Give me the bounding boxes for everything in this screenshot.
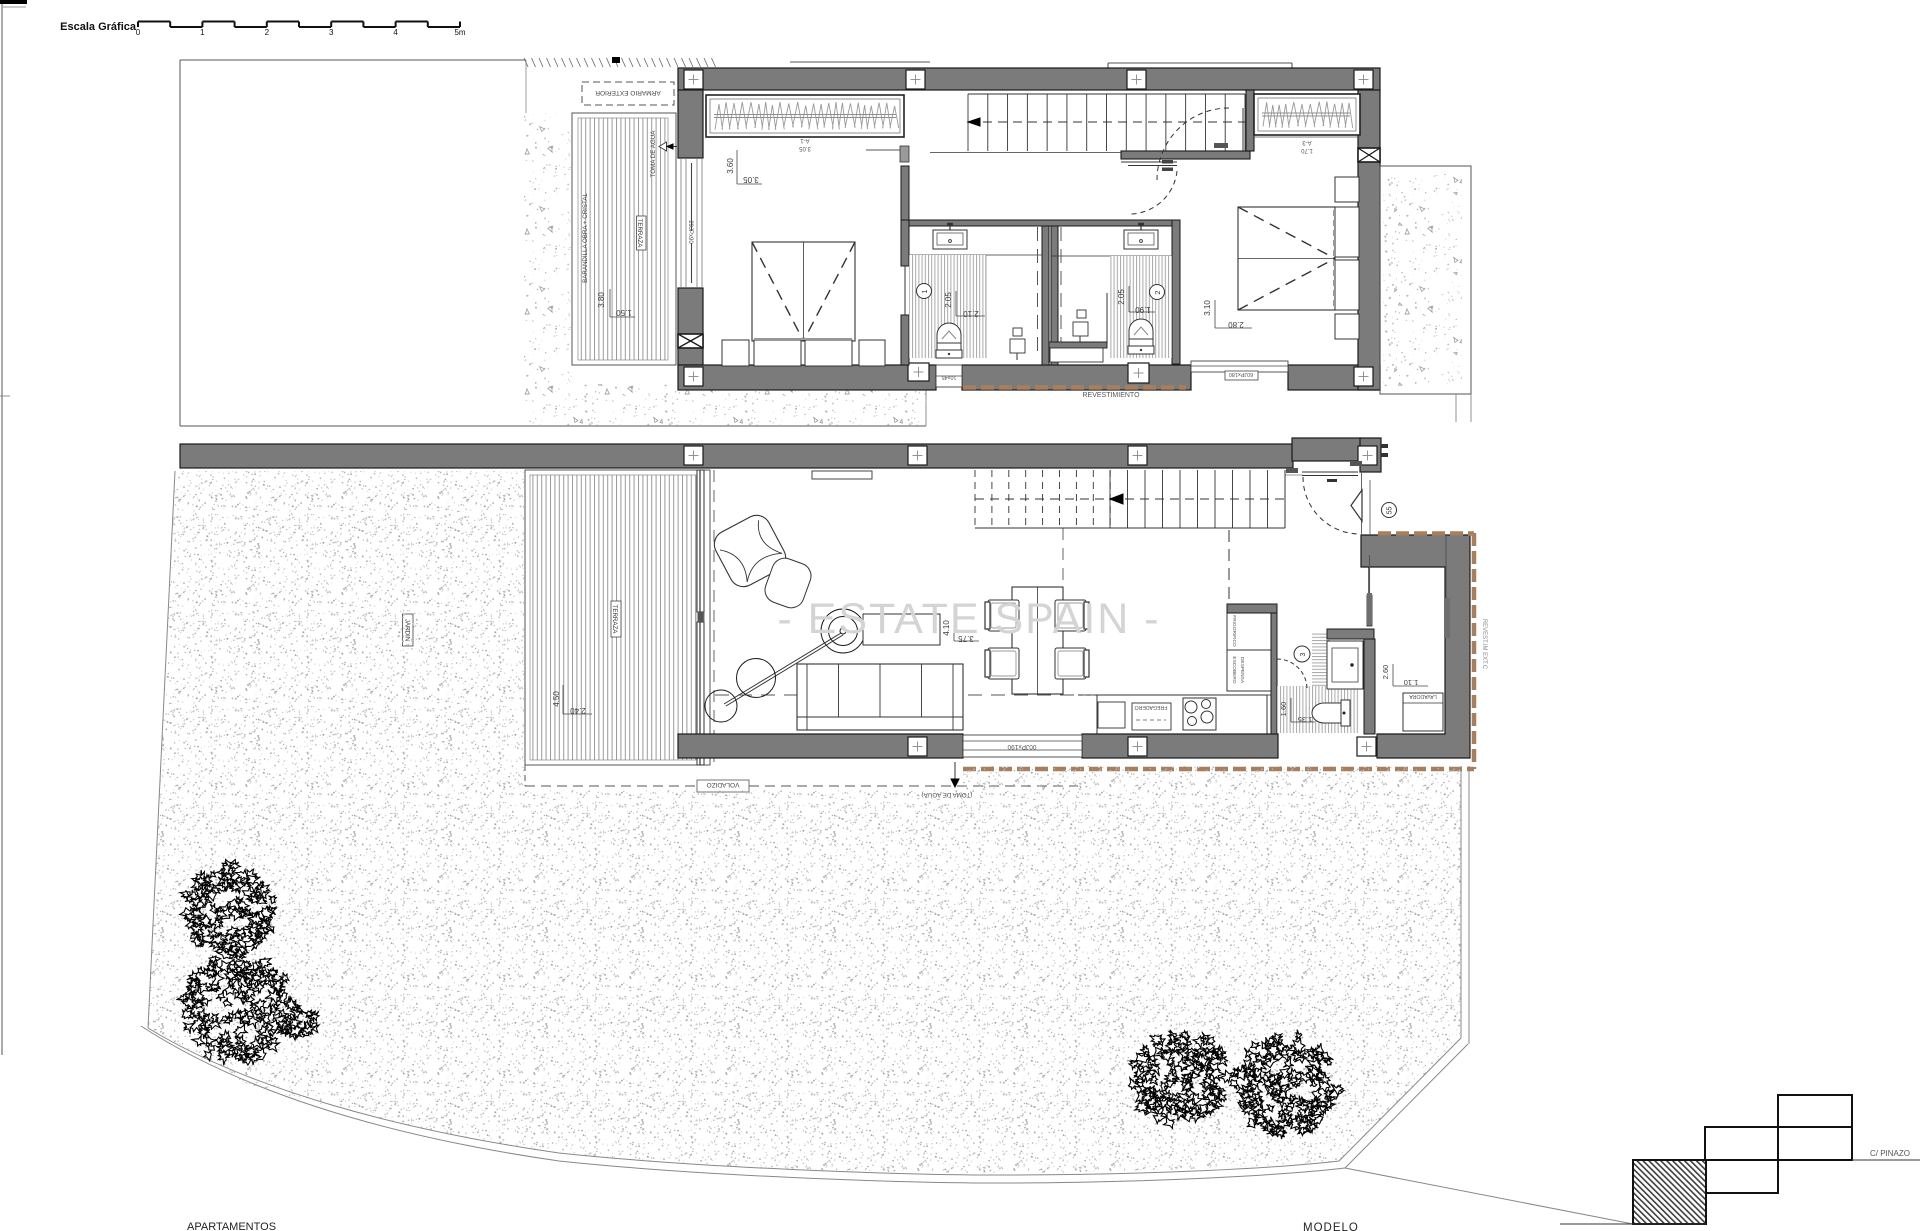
svg-text:A-1: A-1 — [800, 137, 810, 143]
svg-text:60JPx180: 60JPx180 — [1229, 371, 1253, 377]
svg-text:1.50: 1.50 — [616, 308, 632, 317]
svg-text:FRIGORIFICO: FRIGORIFICO — [1231, 615, 1237, 647]
svg-text:5m: 5m — [454, 28, 465, 37]
svg-text:2.10: 2.10 — [963, 309, 979, 318]
svg-text:1: 1 — [920, 289, 929, 293]
svg-text:1.60: 1.60 — [1279, 702, 1288, 717]
svg-text:3: 3 — [329, 28, 334, 37]
svg-text:REVESTIMIENTO: REVESTIMIENTO — [1082, 392, 1140, 399]
svg-text:1.70: 1.70 — [1301, 147, 1313, 153]
svg-text:55: 55 — [1387, 507, 1394, 515]
svg-text:LAVADORA: LAVADORA — [1409, 693, 1437, 699]
svg-text:2.05: 2.05 — [944, 292, 953, 308]
svg-text:3.05: 3.05 — [799, 145, 811, 151]
svg-text:1.90: 1.90 — [1135, 305, 1151, 314]
svg-text:1.10: 1.10 — [1404, 678, 1419, 687]
svg-text:- ESTATE SPAIN -: - ESTATE SPAIN - — [777, 595, 1160, 643]
svg-text:TOMA DE AGUA: TOMA DE AGUA — [650, 130, 657, 178]
svg-text:3.10: 3.10 — [1203, 300, 1212, 316]
svg-text:A-3: A-3 — [1302, 139, 1312, 145]
svg-text:2: 2 — [265, 28, 270, 37]
svg-text:1.35: 1.35 — [1298, 715, 1313, 724]
svg-text:0: 0 — [136, 28, 141, 37]
svg-text:TERRAZA: TERRAZA — [636, 219, 643, 249]
svg-text:Escala Gráfica: Escala Gráfica — [60, 21, 137, 33]
svg-text:C/ PINAZO: C/ PINAZO — [1870, 1149, 1910, 1158]
svg-text:BARANDILLA OBRA + CRISTAL: BARANDILLA OBRA + CRISTAL — [582, 193, 589, 283]
svg-text:00JPx190: 00JPx190 — [1007, 743, 1036, 750]
svg-text:2.40: 2.40 — [570, 706, 586, 715]
svg-text:MODELO: MODELO — [1303, 1222, 1359, 1231]
svg-text:2.05: 2.05 — [1117, 289, 1126, 305]
svg-text:2.80: 2.80 — [1228, 320, 1244, 329]
svg-text:ESCOBERO: ESCOBERO — [1231, 656, 1237, 683]
svg-text:29JPx90: 29JPx90 — [687, 220, 693, 244]
svg-text:10x45: 10x45 — [942, 374, 957, 380]
svg-text:APARTAMENTOS: APARTAMENTOS — [187, 1221, 276, 1231]
svg-text:FREGADERO: FREGADERO — [1135, 704, 1168, 710]
svg-text:2.60: 2.60 — [1381, 665, 1390, 680]
svg-text:4: 4 — [393, 28, 398, 37]
svg-text:3.05: 3.05 — [743, 175, 759, 184]
svg-text:TERRAZA: TERRAZA — [611, 605, 618, 635]
svg-text:2: 2 — [1153, 290, 1162, 294]
svg-text:REVEST.IM EXT.C: REVEST.IM EXT.C — [1481, 619, 1487, 670]
svg-text:3.60: 3.60 — [726, 158, 735, 174]
svg-text:DESPENSA: DESPENSA — [1239, 657, 1245, 684]
svg-text:4.50: 4.50 — [552, 691, 561, 707]
svg-text:3: 3 — [1300, 652, 1307, 656]
svg-text:1: 1 — [200, 28, 205, 37]
svg-text:ARMARIO EXTERIOR: ARMARIO EXTERIOR — [595, 89, 661, 96]
svg-text:VOLADIZO: VOLADIZO — [707, 781, 740, 788]
svg-text:3.80: 3.80 — [597, 292, 606, 308]
